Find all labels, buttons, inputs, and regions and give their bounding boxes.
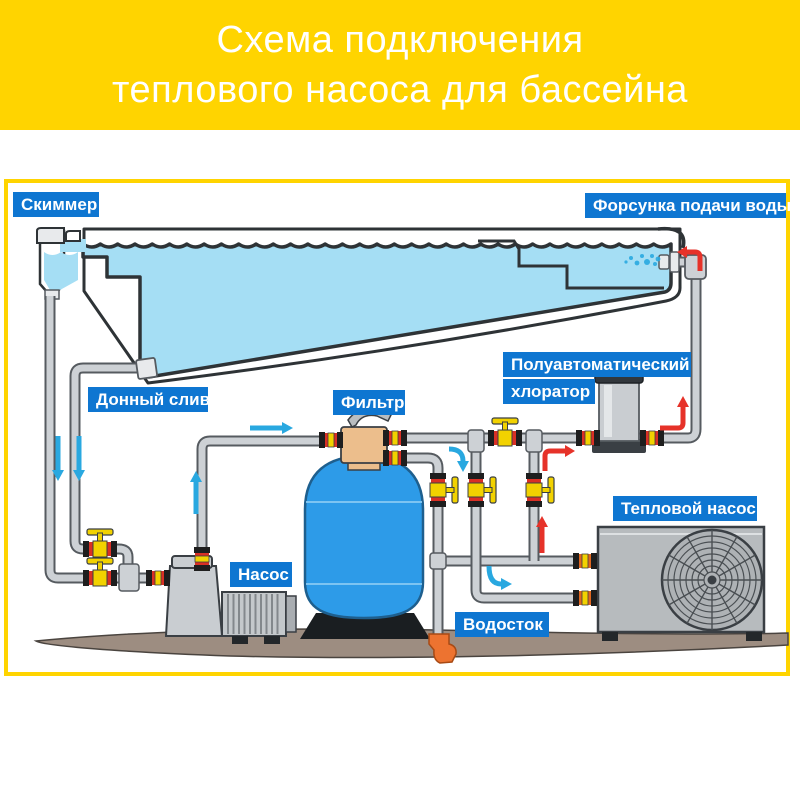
svg-text:Насос: Насос (238, 565, 289, 584)
pipe-tee (468, 430, 484, 452)
pipe-union (194, 547, 210, 571)
inlet-nozzle-fitting (670, 252, 679, 272)
pump-foot (264, 636, 280, 644)
spray-dot (640, 254, 644, 258)
spray-dot (635, 261, 640, 266)
skimmer-cap (37, 228, 64, 243)
svg-text:Донный слив: Донный слив (96, 390, 210, 409)
spray-dot (653, 262, 657, 266)
svg-text:Скиммер: Скиммер (21, 195, 97, 214)
pump-motor (222, 592, 286, 636)
ball-valve (83, 529, 117, 557)
inlet-nozzle-fitting (659, 255, 669, 269)
ball-valve (526, 473, 554, 507)
page: Схема подключения теплового насоса для б… (0, 0, 800, 801)
svg-text:Форсунка подачи воды: Форсунка подачи воды (593, 196, 791, 215)
label-skimmer: Скиммер (13, 192, 99, 217)
filter-tank (305, 456, 423, 618)
pipe-union (383, 430, 407, 446)
pipe-union (576, 430, 600, 446)
label-inlet-nozzle: Форсунка подачи воды (585, 193, 791, 218)
pipe-union (573, 590, 597, 606)
skimmer-weir-flap (66, 231, 80, 241)
ball-valve (83, 558, 117, 586)
svg-text:Полуавтоматический: Полуавтоматический (511, 355, 689, 374)
spray-dot (656, 257, 661, 262)
svg-text:Тепловой насос: Тепловой насос (621, 499, 756, 518)
ball-valve (430, 473, 458, 507)
label-pump: Насос (230, 562, 292, 587)
pipe-union (383, 450, 407, 466)
pump-housing (166, 566, 222, 636)
fan-grille (662, 530, 762, 630)
spray-dot (629, 256, 633, 260)
heat-pump-foot (746, 632, 762, 641)
pump-foot (232, 636, 248, 644)
label-heat-pump: Тепловой насос (613, 496, 757, 521)
label-drain: Водосток (455, 612, 549, 637)
spray-dot (650, 254, 654, 258)
ball-valve (468, 473, 496, 507)
heat-pump-foot (602, 632, 618, 641)
svg-text:Фильтр: Фильтр (341, 393, 404, 412)
inlet-elbow-fitting (685, 255, 706, 279)
pump-motor-cap (286, 596, 296, 632)
chlorinator-highlight (604, 385, 612, 437)
label-filter: Фильтр (333, 390, 405, 415)
label-bottom-drain: Донный слив (88, 387, 210, 412)
pipe-tee (119, 564, 139, 591)
bottom-drain-fitting (136, 358, 157, 379)
pipe-union (640, 430, 664, 446)
spray-dot (644, 259, 650, 265)
pipe-union (319, 432, 343, 448)
pipe-tee (526, 430, 542, 452)
svg-text:хлоратор: хлоратор (511, 382, 590, 401)
pipe-union (146, 570, 170, 586)
heat-pump (598, 527, 764, 641)
pipe-union (573, 553, 597, 569)
svg-text:Водосток: Водосток (463, 615, 543, 634)
pipe-tee (430, 553, 446, 569)
multiport-valve (341, 427, 387, 463)
spray-dot (624, 260, 627, 263)
diagram: Скиммер Форсунка подачи воды Донный слив… (0, 0, 800, 801)
ball-valve (488, 418, 522, 446)
